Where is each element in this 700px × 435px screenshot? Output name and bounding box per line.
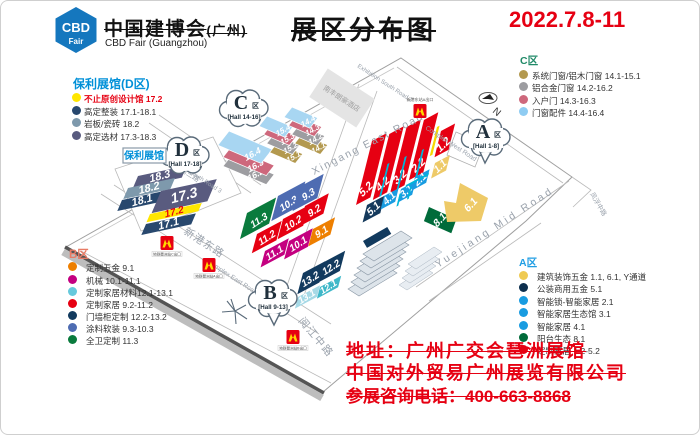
svg-text:[Hall 17-18]: [Hall 17-18] (168, 161, 201, 168)
svg-text:B: B (263, 282, 276, 304)
svg-text:N: N (490, 106, 503, 119)
svg-text:D: D (175, 139, 189, 161)
svg-text:[Hall 1-8]: [Hall 1-8] (473, 143, 499, 150)
svg-text:C: C (234, 92, 248, 114)
svg-text:地铁琶洲站A出口: 地铁琶洲站A出口 (195, 274, 223, 279)
svg-text:[Hall 9-13]: [Hall 9-13] (258, 304, 288, 311)
svg-text:保利展馆: 保利展馆 (123, 149, 164, 162)
svg-text:区: 区 (494, 131, 501, 139)
svg-text:地铁琶洲站C出口: 地铁琶洲站C出口 (153, 252, 181, 257)
svg-text:A: A (476, 121, 491, 143)
svg-text:凤浮中路: 凤浮中路 (588, 191, 609, 218)
svg-text:新港东站A出口: 新港东站A出口 (407, 96, 434, 102)
svg-text:地铁琶洲站B出口: 地铁琶洲站B出口 (279, 346, 307, 351)
svg-text:区: 区 (252, 102, 259, 110)
svg-text:区: 区 (281, 292, 288, 300)
svg-text:Fair: Fair (69, 37, 84, 46)
svg-text:区: 区 (193, 149, 200, 157)
svg-text:CBD: CBD (62, 20, 90, 35)
svg-text:[Hall 14-16]: [Hall 14-16] (227, 114, 260, 121)
